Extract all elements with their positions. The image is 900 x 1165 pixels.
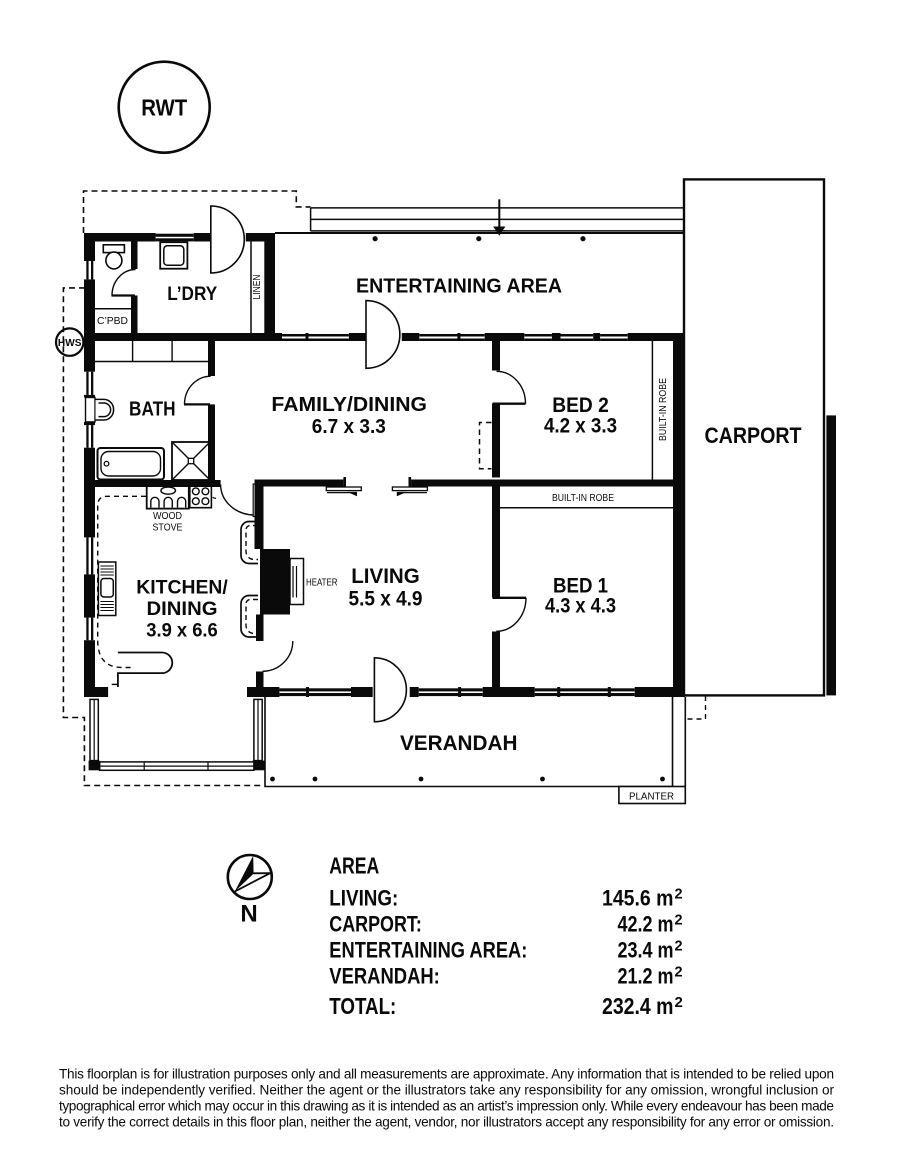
svg-text:BATH: BATH	[129, 399, 176, 421]
svg-text:WOOD: WOOD	[153, 510, 182, 522]
svg-text:232.4 m: 232.4 m	[602, 993, 674, 1019]
svg-text:CARPORT: CARPORT	[705, 423, 802, 448]
svg-text:RWT: RWT	[141, 95, 188, 121]
svg-text:2: 2	[675, 939, 683, 955]
svg-text:ENTERTAINING AREA:: ENTERTAINING AREA:	[329, 938, 527, 963]
svg-text:CARPORT:: CARPORT:	[329, 912, 422, 937]
svg-text:FAMILY/DINING: FAMILY/DINING	[271, 394, 427, 416]
svg-text:4.3 x 4.3: 4.3 x 4.3	[545, 595, 616, 618]
svg-text:VERANDAH: VERANDAH	[400, 732, 518, 755]
svg-text:TOTAL:: TOTAL:	[329, 993, 396, 1019]
svg-text:3.9 x 6.6: 3.9 x 6.6	[146, 620, 218, 642]
svg-text:2: 2	[675, 994, 683, 1011]
svg-text:BUILT-IN ROBE: BUILT-IN ROBE	[552, 493, 614, 504]
svg-text:42.2 m: 42.2 m	[618, 912, 674, 937]
svg-text:STOVE: STOVE	[153, 522, 183, 534]
svg-text:5.5 x 4.9: 5.5 x 4.9	[349, 588, 423, 611]
svg-text:2: 2	[675, 886, 683, 902]
svg-text:VERANDAH:: VERANDAH:	[329, 964, 440, 989]
svg-text:2: 2	[675, 913, 683, 929]
svg-text:This floorplan is for illustra: This floorplan is for illustration purpo…	[59, 1067, 834, 1082]
svg-text:HEATER: HEATER	[306, 577, 338, 589]
svg-text:21.2 m: 21.2 m	[618, 964, 674, 989]
svg-text:N: N	[240, 901, 257, 928]
svg-text:ENTERTAINING AREA: ENTERTAINING AREA	[356, 276, 562, 298]
svg-text:should be independently verifi: should be independently verified. Neithe…	[59, 1083, 834, 1098]
svg-text:4.2 x 3.3: 4.2 x 3.3	[544, 415, 617, 438]
svg-text:LINEN: LINEN	[252, 275, 263, 300]
svg-text:LIVING:: LIVING:	[329, 885, 398, 910]
svg-text:PLANTER: PLANTER	[629, 791, 674, 803]
svg-text:typographical error which may: typographical error which may occur in t…	[59, 1099, 834, 1114]
svg-text:to verify the correct details: to verify the correct details in this fl…	[59, 1115, 834, 1130]
svg-text:HWS: HWS	[58, 338, 82, 349]
svg-text:6.7 x 3.3: 6.7 x 3.3	[312, 416, 386, 438]
svg-text:145.6 m: 145.6 m	[602, 885, 674, 910]
svg-text:2: 2	[675, 965, 683, 981]
svg-text:BUILT-IN ROBE: BUILT-IN ROBE	[658, 378, 669, 441]
svg-text:C’PBD: C’PBD	[97, 315, 128, 327]
svg-text:LIVING: LIVING	[351, 565, 420, 588]
svg-text:KITCHEN/: KITCHEN/	[136, 577, 228, 599]
svg-text:23.4 m: 23.4 m	[618, 938, 674, 963]
svg-text:DINING: DINING	[147, 598, 218, 620]
svg-text:L’DRY: L’DRY	[167, 284, 217, 305]
svg-text:AREA: AREA	[329, 853, 379, 879]
